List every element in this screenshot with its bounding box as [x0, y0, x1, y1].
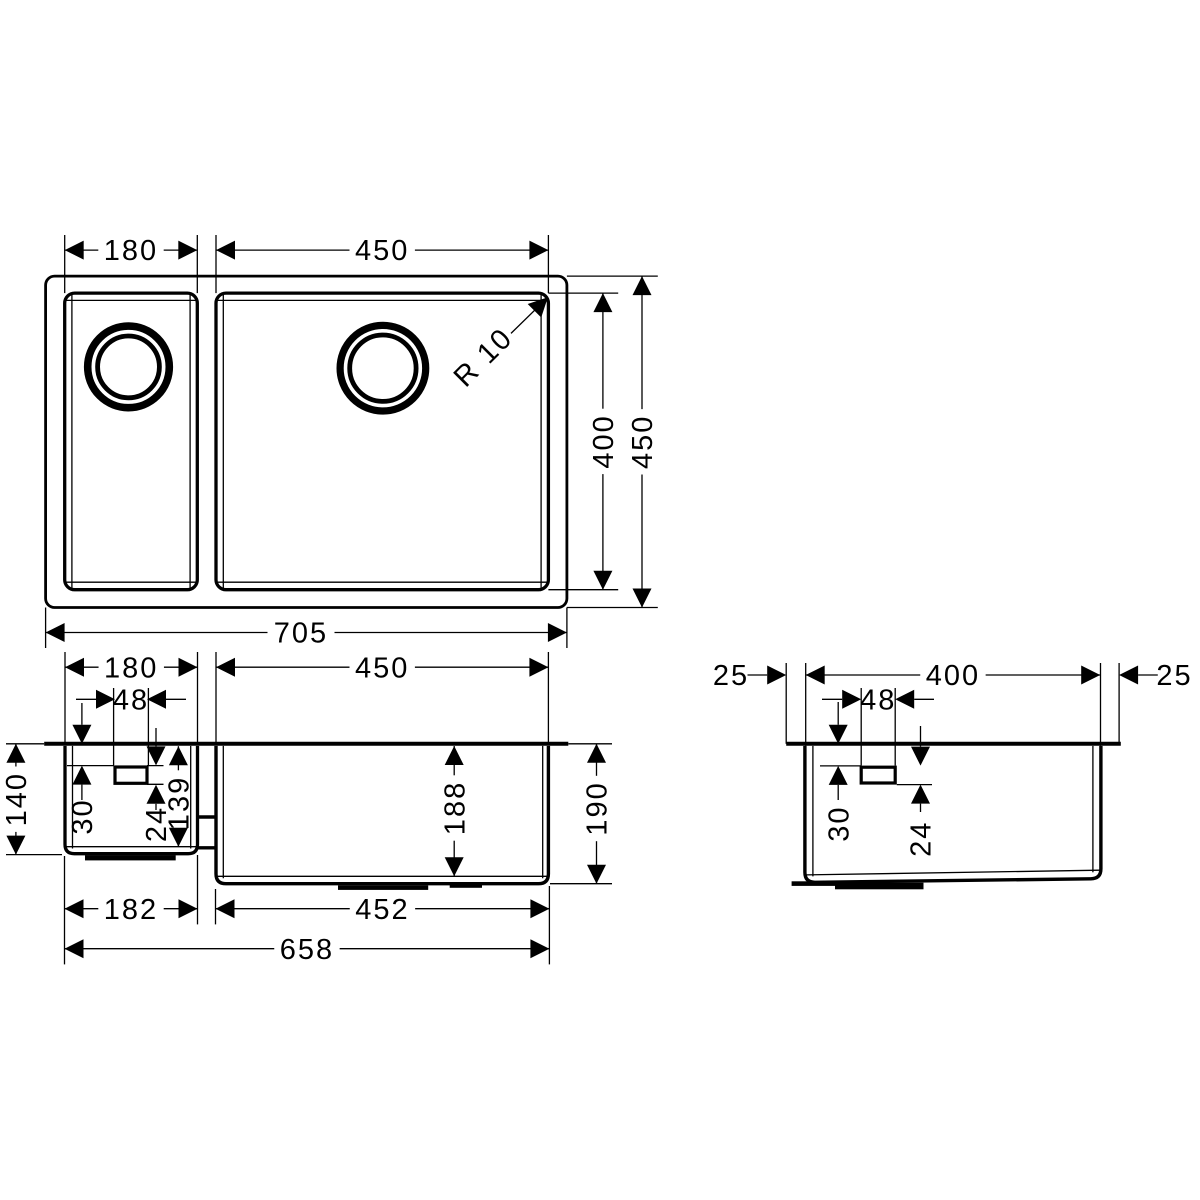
svg-text:180: 180	[104, 235, 158, 267]
svg-text:24: 24	[906, 821, 938, 857]
svg-text:25: 25	[713, 660, 749, 692]
svg-text:190: 190	[582, 781, 614, 835]
svg-text:180: 180	[104, 652, 158, 684]
svg-text:182: 182	[104, 894, 158, 926]
svg-text:140: 140	[1, 772, 33, 826]
svg-text:705: 705	[274, 618, 328, 650]
svg-text:450: 450	[627, 415, 659, 469]
svg-text:450: 450	[355, 235, 409, 267]
svg-text:30: 30	[823, 805, 855, 841]
svg-text:48: 48	[113, 684, 149, 716]
svg-text:400: 400	[926, 660, 980, 692]
svg-text:452: 452	[355, 894, 409, 926]
svg-text:658: 658	[280, 934, 334, 966]
svg-text:48: 48	[860, 684, 896, 716]
svg-text:450: 450	[355, 652, 409, 684]
svg-text:400: 400	[588, 414, 620, 468]
svg-text:30: 30	[67, 798, 99, 834]
svg-text:R 10: R 10	[448, 322, 520, 394]
svg-text:139: 139	[164, 776, 196, 830]
svg-text:25: 25	[1156, 660, 1192, 692]
svg-text:188: 188	[439, 781, 471, 835]
